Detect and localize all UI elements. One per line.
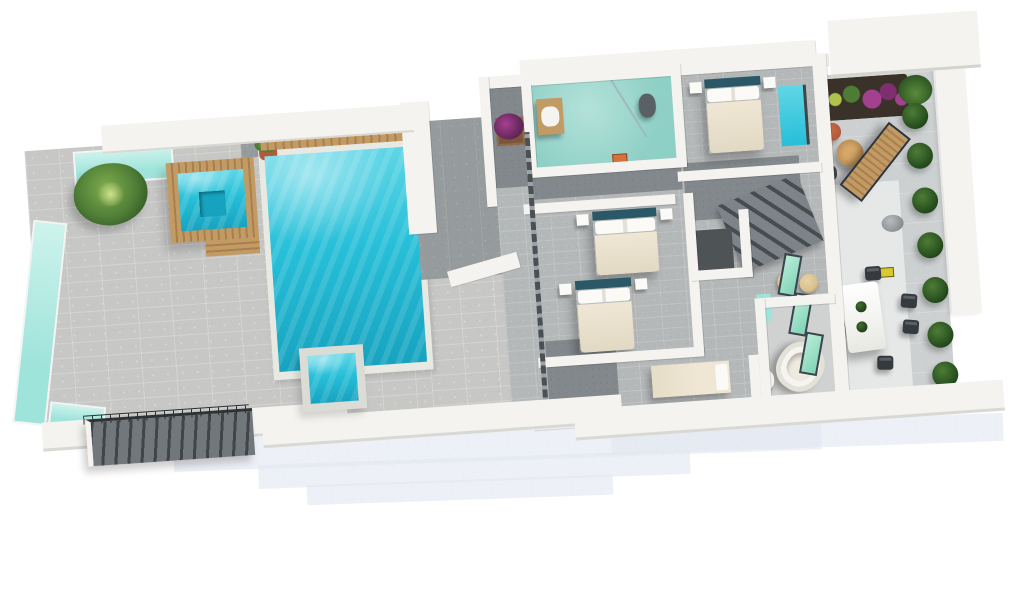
nightstand <box>635 278 648 290</box>
table-plant-pot <box>856 321 868 333</box>
pillows <box>715 364 729 391</box>
bed-bedroom-3 <box>575 277 636 353</box>
table-plant-pot <box>855 301 867 313</box>
nightstand <box>763 77 776 89</box>
nightstand <box>660 208 673 220</box>
neighbor-roof-wall <box>827 10 981 77</box>
bed-bedroom-2 <box>592 207 660 275</box>
bed-bedroom-1 <box>704 76 765 154</box>
duvet <box>707 100 764 154</box>
jacuzzi-seat <box>199 190 227 217</box>
nightstand <box>559 283 572 295</box>
dining-chair <box>877 356 893 370</box>
kids-pool-water <box>307 353 358 404</box>
duvet <box>578 301 635 353</box>
dining-chair <box>865 266 882 281</box>
dining-chair-group <box>827 57 993 412</box>
pool-glimpse-glass <box>778 85 810 147</box>
floorplan-render <box>10 27 994 497</box>
bathroom-vanity-sink <box>536 98 564 136</box>
jacuzzi-water <box>177 169 247 231</box>
planter-box <box>495 116 525 146</box>
dining-chair <box>902 319 919 334</box>
duvet <box>595 231 660 275</box>
main-pool <box>264 146 427 372</box>
nightstand <box>576 214 589 226</box>
toilet <box>638 93 657 118</box>
nightstand <box>689 82 702 94</box>
dining-chair <box>901 293 918 308</box>
jacuzzi <box>166 157 259 243</box>
bed-bedroom-4 <box>651 361 731 398</box>
kids-pool <box>299 344 367 412</box>
